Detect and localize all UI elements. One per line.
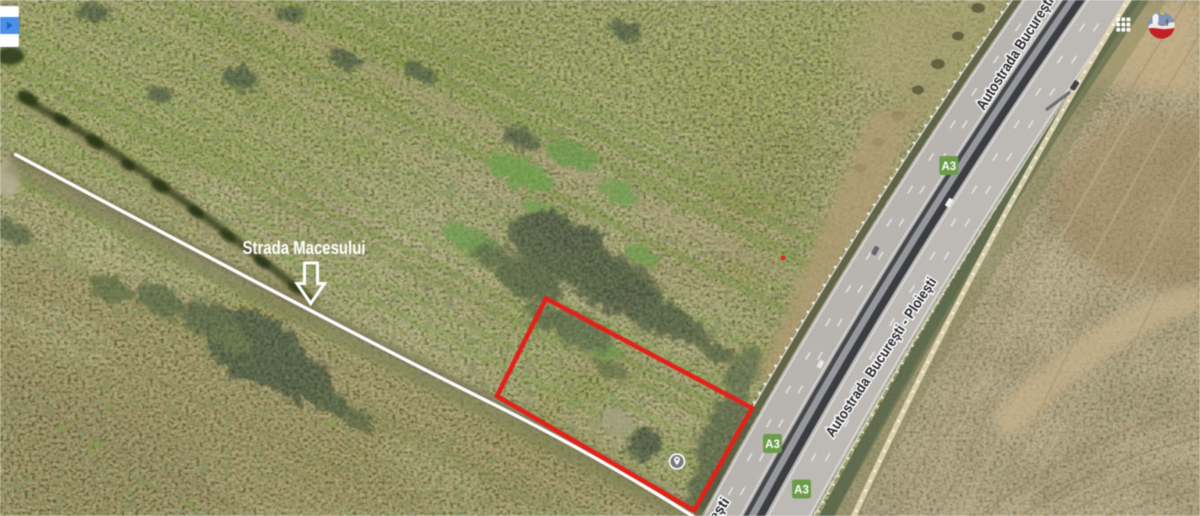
svg-text:A3: A3 [765,439,780,451]
svg-text:A3: A3 [941,161,956,173]
svg-text:Strada Macesului: Strada Macesului [243,237,366,258]
svg-text:A3: A3 [794,485,809,497]
